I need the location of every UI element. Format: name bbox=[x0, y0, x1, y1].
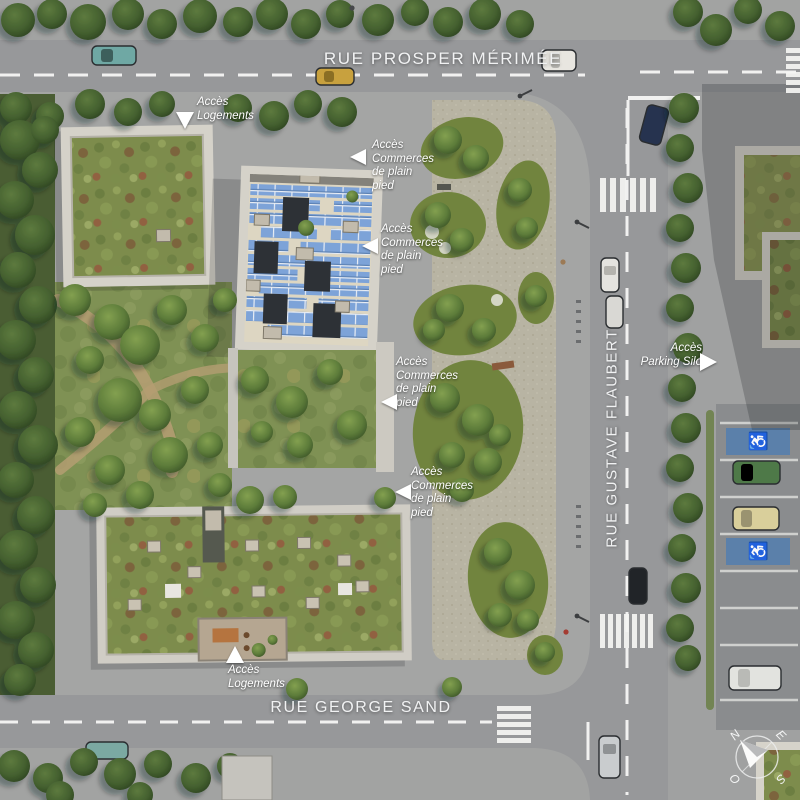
building-top-left-green-roof bbox=[54, 125, 216, 292]
access-housing-top-arrow-icon bbox=[176, 112, 194, 129]
annotation-access-shops-1: Accès Commerces de plain pied bbox=[372, 139, 434, 193]
handicap-icon: ♿ bbox=[748, 540, 768, 561]
building-south-green-roof bbox=[89, 504, 412, 669]
street-label-rue-george-sand: RUE GEORGE SAND bbox=[270, 699, 451, 717]
bench bbox=[437, 184, 451, 190]
annotation-access-shops-3: Accès Commerces de plain pied bbox=[396, 356, 458, 410]
courtyard-green-roof bbox=[228, 342, 394, 472]
access-shops-2-arrow-icon bbox=[362, 238, 378, 254]
access-parking-silo-arrow-icon bbox=[700, 353, 717, 371]
street-label-rue-gustave-flaubert: RUE GUSTAVE FLAUBERT bbox=[604, 328, 621, 548]
annotation-access-parking-silo: Accès Parking Silo bbox=[640, 342, 702, 369]
annotation-access-housing-top: Accès Logements bbox=[197, 96, 254, 123]
access-housing-bottom-arrow-icon bbox=[226, 646, 244, 663]
access-shops-4-arrow-icon bbox=[395, 484, 411, 500]
annotation-access-shops-4: Accès Commerces de plain pied bbox=[411, 466, 473, 520]
street-label-rue-prosper-merimee: RUE PROSPER MÉRIMÉE bbox=[324, 49, 562, 69]
access-shops-1-arrow-icon bbox=[350, 149, 366, 165]
access-shops-3-arrow-icon bbox=[381, 394, 397, 410]
annotation-access-housing-bottom: Accès Logements bbox=[228, 664, 285, 691]
annotation-access-shops-2: Accès Commerces de plain pied bbox=[381, 223, 443, 277]
parking-strip: ♿ ♿ bbox=[706, 404, 800, 730]
building-central-solar bbox=[207, 165, 384, 363]
site-plan: ♿ ♿ bbox=[0, 0, 800, 800]
handicap-icon: ♿ bbox=[748, 430, 768, 451]
